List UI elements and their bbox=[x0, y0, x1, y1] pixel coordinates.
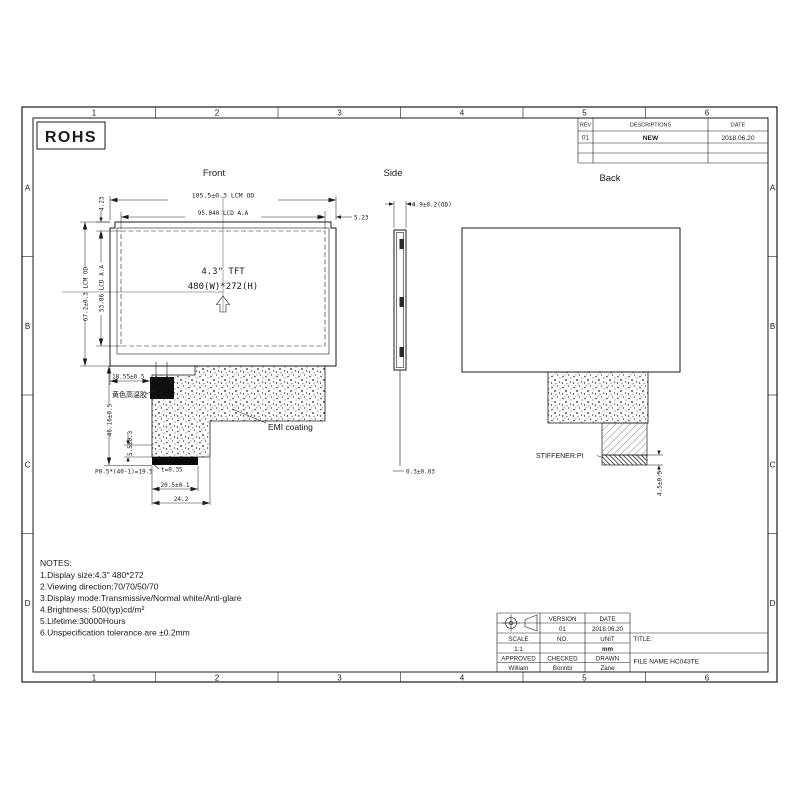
stiffener-label: STIFFENER:PI bbox=[536, 453, 584, 460]
date-value: 2018.06.20 bbox=[592, 626, 624, 633]
dim-aa-width: 95.040 LCD A.A bbox=[198, 210, 249, 217]
revision-date: 2018.06.20 bbox=[721, 135, 754, 142]
title-label: TITLE: bbox=[634, 636, 653, 643]
grid-col-6-top: 6 bbox=[705, 109, 710, 118]
grid-row-d-right: D bbox=[770, 599, 776, 608]
revision-rev: 01 bbox=[582, 135, 589, 142]
screen-resolution-text: 480(W)*272(H) bbox=[188, 282, 258, 292]
notes-title: NOTES: bbox=[40, 558, 72, 568]
grid-col-4-bottom: 4 bbox=[460, 674, 465, 683]
grid-row-b-left: B bbox=[25, 322, 30, 331]
revision-table: REV DESCRIPTIONS DATE 01 NEW 2018.06.20 bbox=[578, 118, 768, 163]
date-header: DATE bbox=[731, 123, 746, 129]
date-label: DATE bbox=[599, 616, 615, 623]
back-fpc-tail bbox=[602, 423, 647, 455]
dim-connector-pitch: P0.5*(40-1)=19.5 bbox=[95, 469, 153, 476]
grid-col-5-bottom: 5 bbox=[582, 674, 587, 683]
grid-col-1-bottom: 1 bbox=[92, 674, 97, 683]
dim-lcm-width: 105.5±0.3 LCM OD bbox=[192, 192, 255, 200]
rohs-badge: ROHS bbox=[37, 122, 105, 149]
checked-label: CHECKED bbox=[547, 655, 578, 662]
grid-row-c-left: C bbox=[25, 461, 31, 470]
grid-row-d-left: D bbox=[25, 599, 31, 608]
grid-col-3-bottom: 3 bbox=[337, 674, 342, 683]
notes-block: NOTES: 1.Display size:4.3" 480*272 2.Vie… bbox=[40, 558, 242, 638]
dim-module-thickness: 4.9±0.2(OD) bbox=[412, 201, 452, 208]
approved-label: APPROVED bbox=[501, 655, 536, 662]
rohs-label: ROHS bbox=[45, 129, 97, 146]
grid-col-3-top: 3 bbox=[337, 109, 342, 118]
back-fpc-area bbox=[548, 372, 648, 423]
screen-size-text: 4.3" TFT bbox=[201, 267, 245, 277]
dim-lcm-height: 67.2±0.3 LCM OD bbox=[82, 267, 89, 322]
back-view-label: Back bbox=[599, 173, 620, 184]
front-view-label: Front bbox=[203, 168, 226, 179]
descriptions-header: DESCRIPTIONS bbox=[630, 123, 672, 129]
yellow-tape-label: 黄色高温胶 bbox=[112, 390, 147, 399]
grid-col-1-top: 1 bbox=[92, 109, 97, 118]
note-item-4: 4.Brightness: 500(typ)cd/m² bbox=[40, 605, 145, 615]
dim-top-margin: 4.23 bbox=[99, 196, 106, 211]
revision-row: 01 NEW 2018.06.20 bbox=[582, 135, 755, 143]
no-label: NO. bbox=[557, 636, 568, 643]
dim-fpc-step: 5.5±0.3 bbox=[127, 430, 134, 456]
back-view-body bbox=[462, 228, 680, 465]
approved-value: William bbox=[509, 665, 529, 672]
version-label: VERSION bbox=[549, 616, 577, 623]
grid-row-a-right: A bbox=[770, 184, 776, 193]
note-item-3: 3.Display mode:Transmissive/Normal white… bbox=[40, 593, 242, 603]
grid-col-2-bottom: 2 bbox=[215, 674, 220, 683]
dim-finger-thickness: t=0.35 bbox=[161, 467, 183, 474]
dim-fpc-width: 24.2 bbox=[174, 496, 189, 503]
grid-col-5-top: 5 bbox=[582, 109, 587, 118]
side-view-body bbox=[394, 230, 406, 466]
version-value: 01 bbox=[559, 626, 566, 633]
note-item-1: 1.Display size:4.3" 480*272 bbox=[40, 570, 144, 580]
dim-right-margin: 5.23 bbox=[354, 214, 369, 221]
scale-label: SCALE bbox=[508, 636, 528, 643]
checked-value: Bonnbi bbox=[553, 665, 572, 672]
side-view-label: Side bbox=[383, 168, 402, 179]
unit-label: UNIT bbox=[600, 636, 615, 643]
side-view: Side 4.9±0.2(OD) 0.3±0.03 bbox=[383, 168, 451, 476]
yellow-tape-block bbox=[150, 377, 174, 399]
dim-aa-height: 53.86 LCD A.A bbox=[98, 265, 105, 312]
note-item-6: 6.Unspecification tolerance are ±0.2mm bbox=[40, 628, 190, 638]
grid-col-6-bottom: 6 bbox=[705, 674, 710, 683]
dim-stiffener-height: 4.5±0.5 bbox=[657, 470, 664, 496]
unit-value: mm bbox=[602, 646, 614, 653]
title-block: VERSION DATE 01 2018.06.20 SCALE NO. UNI… bbox=[497, 613, 768, 672]
scale-value: 1:1 bbox=[514, 646, 523, 653]
dim-finger-width: 20.5±0.1 bbox=[161, 482, 190, 489]
drawn-value: Zane bbox=[600, 665, 615, 672]
file-name: FILE NAME:HC043TE bbox=[634, 659, 700, 666]
drawing-canvas: 1 2 3 4 5 6 1 2 3 4 5 6 A B C D A B C D … bbox=[0, 0, 800, 800]
grid-row-a-left: A bbox=[25, 184, 31, 193]
dim-tape-offset: 18.55±0.5 bbox=[112, 374, 145, 381]
grid-col-4-top: 4 bbox=[460, 109, 465, 118]
front-view: Front 4.3" TFT 480(W)*272(H) bbox=[62, 168, 369, 505]
drawing-sheet: 1 2 3 4 5 6 1 2 3 4 5 6 A B C D A B C D … bbox=[0, 0, 800, 800]
dim-fpc-length: 46.16±0.5 bbox=[106, 403, 113, 436]
rev-header: REV bbox=[580, 123, 592, 129]
note-item-5: 5.Lifetime:30000Hours bbox=[40, 616, 126, 626]
front-fpc bbox=[150, 362, 325, 465]
revision-description: NEW bbox=[643, 135, 659, 142]
gold-finger-bar bbox=[152, 457, 198, 465]
emi-coating-label: EMI coating bbox=[268, 422, 313, 432]
dim-fpc-thickness: 0.3±0.03 bbox=[406, 469, 435, 476]
drawn-label: DRAWN bbox=[596, 655, 619, 662]
stiffener-bar bbox=[602, 455, 647, 465]
title-block-lines bbox=[497, 613, 768, 672]
grid-col-2-top: 2 bbox=[215, 109, 220, 118]
grid-row-b-right: B bbox=[770, 322, 775, 331]
back-view: Back STIFFENER:PI 4.5±0.5 bbox=[462, 173, 680, 496]
note-item-2: 2.Viewing direction:70/70/50/70 bbox=[40, 582, 159, 592]
grid-row-c-right: C bbox=[770, 461, 776, 470]
